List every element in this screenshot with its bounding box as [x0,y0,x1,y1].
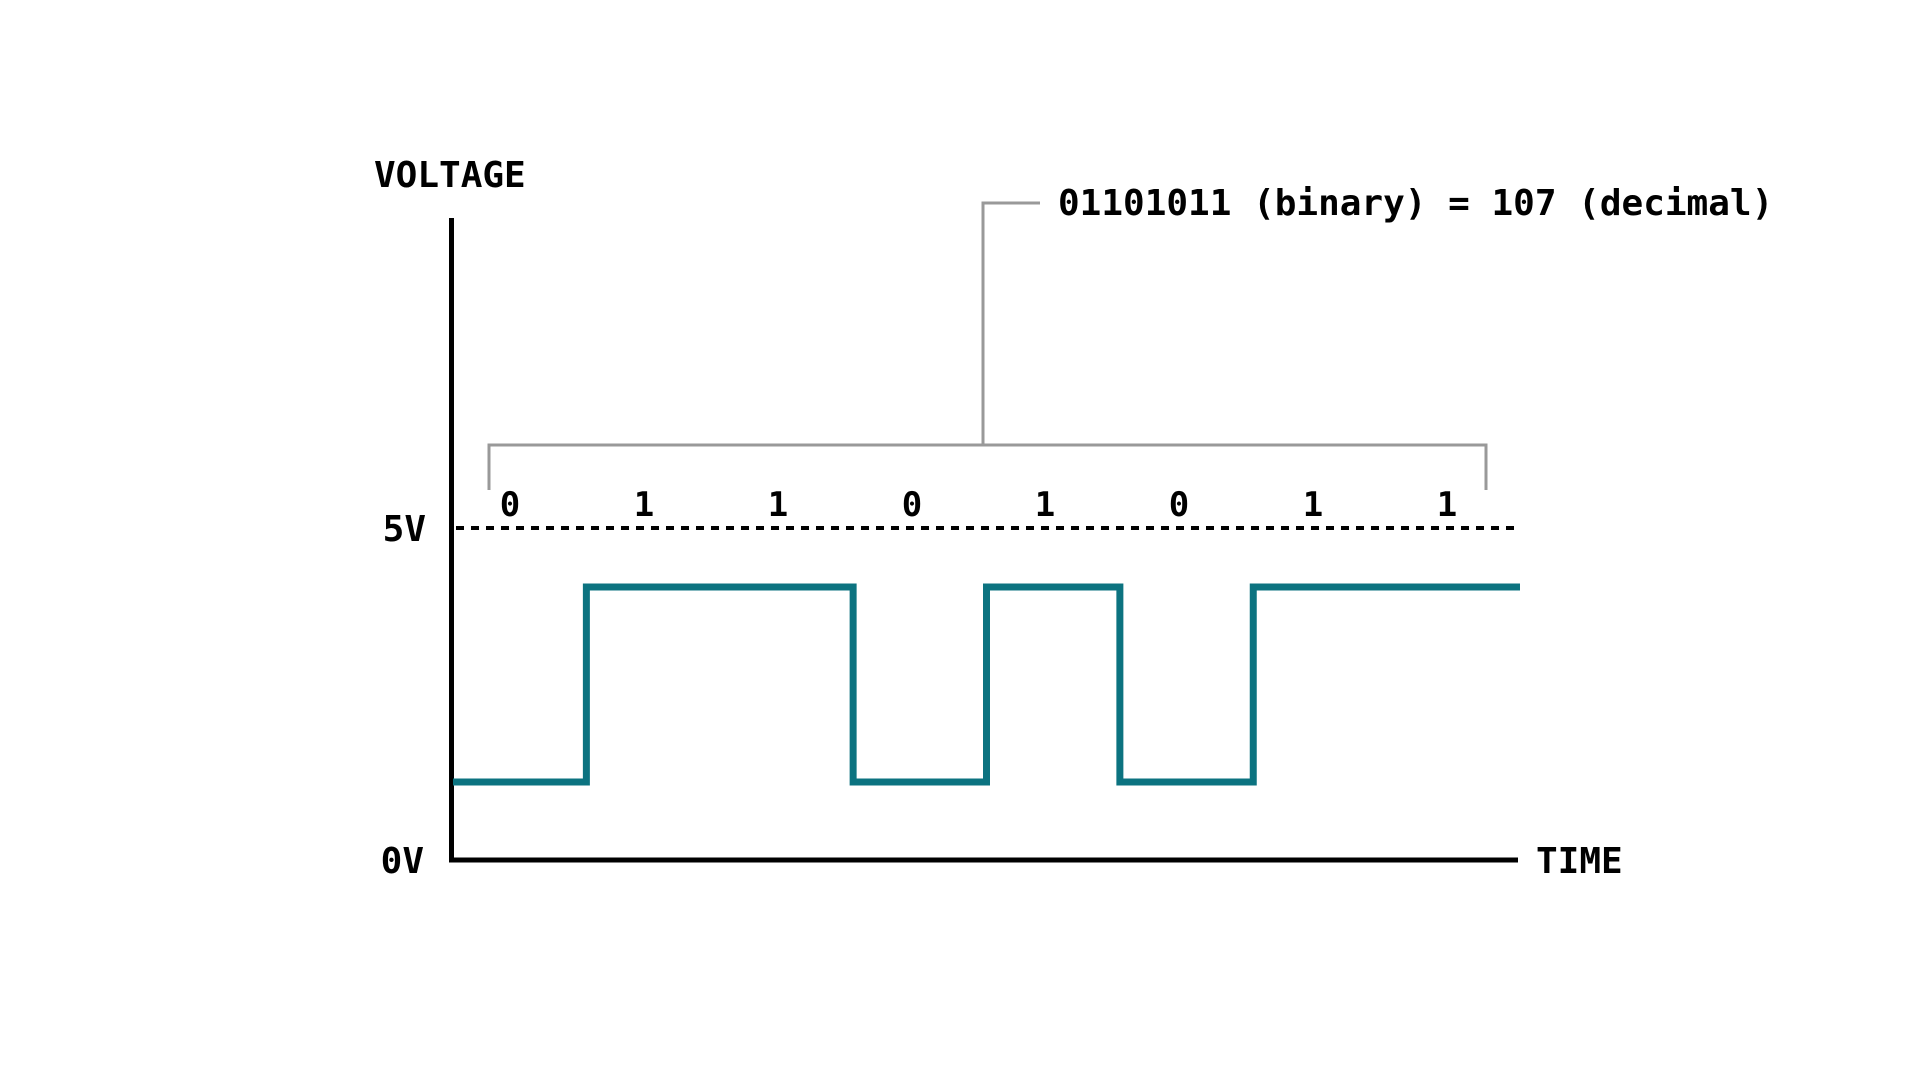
bit-label-7: 1 [1437,485,1457,525]
diagram-canvas: VOLTAGE TIME 5V 0V 01101011 (binary) = 1… [0,0,1920,1080]
tick-label-5v: 5V [383,509,426,550]
time-axis-label: TIME [1536,841,1623,882]
bit-label-6: 1 [1303,485,1323,525]
digital-signal-waveform [453,587,1520,782]
bit-label-3: 0 [902,485,922,525]
bit-label-4: 1 [1035,485,1055,525]
bit-label-5: 0 [1169,485,1189,525]
voltage-axis-label: VOLTAGE [374,155,526,196]
bit-label-1: 1 [634,485,654,525]
tick-label-0v: 0V [381,841,424,882]
bit-label-0: 0 [500,485,520,525]
binary-signal-diagram: VOLTAGE TIME 5V 0V 01101011 (binary) = 1… [0,0,1920,1080]
bit-label-2: 1 [768,485,788,525]
bit-group-bracket [489,445,1486,490]
bracket-connector-line [983,203,1040,445]
binary-decimal-annotation: 01101011 (binary) = 107 (decimal) [1058,183,1773,224]
